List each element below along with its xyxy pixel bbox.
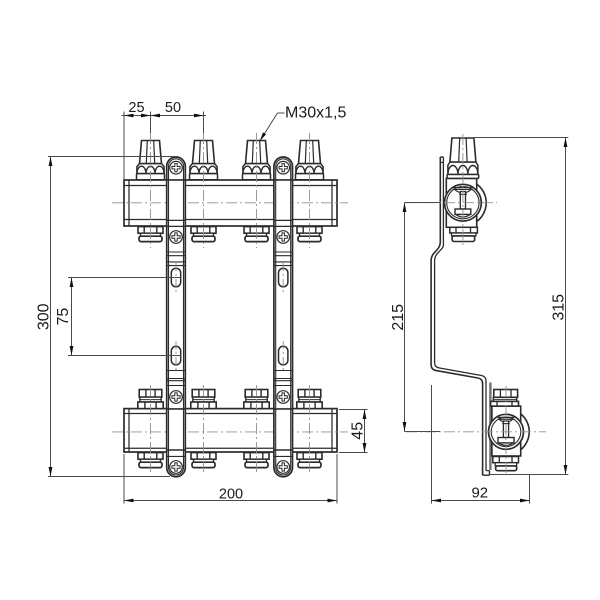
svg-text:75: 75 (55, 308, 72, 326)
svg-text:300: 300 (36, 303, 53, 330)
svg-text:M30x1,5: M30x1,5 (285, 104, 346, 121)
svg-text:50: 50 (165, 100, 181, 116)
svg-text:45: 45 (350, 422, 367, 440)
svg-text:315: 315 (550, 294, 567, 321)
svg-text:215: 215 (390, 304, 407, 331)
svg-text:25: 25 (128, 100, 144, 116)
svg-text:200: 200 (219, 486, 243, 502)
svg-text:92: 92 (471, 485, 488, 502)
